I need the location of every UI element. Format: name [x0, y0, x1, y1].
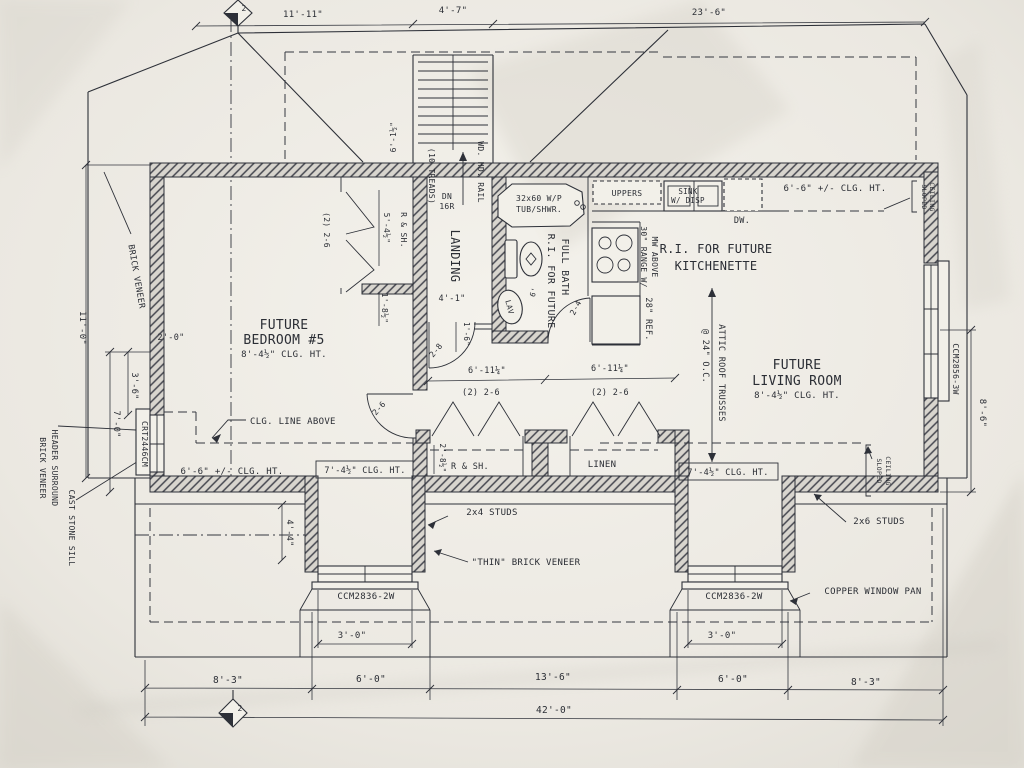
- dim-dormer-left-width: 3'-0": [338, 631, 367, 641]
- hall-dim: 1'-6": [462, 322, 471, 346]
- thin-brick-note: "THIN" BRICK VENEER: [472, 558, 581, 568]
- linen-label: LINEN: [588, 460, 617, 470]
- room-label-living-2: LIVING ROOM: [752, 374, 841, 389]
- tub-label-2: TUB/SHWR.: [516, 205, 562, 214]
- room-label-kitchenette-2: KITCHENETTE: [675, 259, 758, 273]
- dim-left-upper: 3'-6": [129, 372, 139, 399]
- tub-label-1: 32x60 W/P: [516, 194, 562, 203]
- range: [592, 228, 638, 282]
- kitchen-ceiling-note: 6'-6" +/- CLG. HT.: [784, 184, 887, 194]
- dim-left-lower: 7'-0": [111, 410, 121, 437]
- attic-truss-note-1: ATTIC ROOF TRUSSES: [716, 324, 726, 422]
- dim-bottom-2: 6'-0": [356, 674, 386, 685]
- toilet-bowl: [520, 242, 542, 276]
- sloped-ceiling-top-1: SLOPED: [920, 184, 928, 209]
- window-label-dormer-right: CCM2836-2W: [705, 592, 762, 602]
- room-label-bath-1: R.I. FOR FUTURE: [545, 234, 556, 329]
- floorplan-drawing: 11'-11" 4'-7" 23'-6" (10 TREADS) WD. HD.…: [0, 0, 1024, 768]
- bedroom-closet-door-size: (2) 2-6: [322, 212, 331, 248]
- toilet-tank: [505, 240, 517, 278]
- bedroom-closet-rod-shelf: R & SH.: [399, 212, 408, 248]
- bedroom-closet-depth-dim: 5'-4½": [382, 213, 392, 244]
- cast-stone-sill-note: CAST STONE SILL: [67, 490, 76, 567]
- ceiling-line-above-note: CLG. LINE ABOVE: [250, 417, 336, 427]
- window-label-dormer-left: CCM2836-2W: [337, 592, 394, 602]
- refrigerator: [592, 296, 640, 344]
- ceiling-note-left-low: 6'-6" +/- CLG. HT.: [181, 467, 284, 477]
- copper-pan-note: COPPER WINDOW PAN: [824, 587, 921, 597]
- room-label-bedroom-2: BEDROOM #5: [243, 333, 324, 348]
- header-surround-note-1: BRICK VENEER: [38, 437, 47, 498]
- window-label-left: CRT2446CM: [140, 421, 149, 467]
- dim-top-stair: 4'-7": [439, 6, 468, 16]
- ref-label: 28" REF.: [643, 297, 653, 340]
- room-label-kitchenette-1: R.I. FOR FUTURE: [660, 242, 773, 256]
- studs-2x4-note: 2x4 STUDS: [466, 508, 517, 518]
- bedroom-closet-offset-dim: 1'-8½": [380, 293, 390, 324]
- sloped-ceiling-bottom-2: CEILING: [884, 456, 892, 486]
- dim-right-window: 8'-6": [977, 399, 987, 428]
- hall-closet-width-dim: 6'-11¼": [468, 366, 506, 376]
- sink-label-1: SINK: [678, 187, 697, 196]
- dim-top-right: 23'-6": [692, 8, 726, 18]
- hall-closet-rod-shelf: R & SH.: [451, 462, 489, 472]
- header-surround-note-2: HEADER SURROUND: [50, 430, 59, 507]
- dim-top-left: 11'-11": [283, 10, 323, 20]
- bedroom-ceiling-note: 8'-4½" CLG. HT.: [241, 349, 327, 360]
- range-label-2: MW ABOVE: [650, 237, 659, 278]
- scanned-floor-plan-page: 11'-11" 4'-7" 23'-6" (10 TREADS) WD. HD.…: [0, 0, 1024, 768]
- room-label-landing: LANDING: [448, 230, 462, 283]
- ceiling-note-left-mid: 7'-4½" CLG. HT.: [324, 465, 405, 476]
- studs-2x6-note: 2x6 STUDS: [853, 517, 904, 527]
- landing-width-dim: 4'-1": [438, 294, 465, 304]
- range-label-1: 30" RANGE W/: [639, 226, 648, 287]
- stair-treads-note: (10 TREADS): [427, 148, 436, 204]
- wall-notch-dim: 2'-0": [157, 333, 184, 343]
- dim-bottom-4: 6'-0": [718, 674, 748, 685]
- section-marker-bottom-number: 2: [237, 704, 242, 713]
- hall-closet-depth-dim: 2'-8½": [438, 444, 447, 473]
- dishwasher: [724, 179, 762, 211]
- dim-left-total: 11'-0": [77, 311, 87, 345]
- dim-bottom-3: 13'-6": [535, 672, 571, 683]
- sloped-ceiling-bottom-1: SLOPED: [875, 458, 883, 483]
- linen-door-size: (2) 2-6: [591, 388, 629, 398]
- section-marker-top-number: 2: [241, 4, 246, 13]
- sink-label-2: W/ DISP: [671, 196, 705, 205]
- dim-dormer-right-width: 3'-0": [708, 631, 737, 641]
- ceiling-note-right-mid: 7'-4½" CLG. HT.: [687, 467, 768, 478]
- room-label-living-1: FUTURE: [773, 358, 822, 373]
- stair-down-label: DN: [442, 192, 452, 201]
- stair-rail-note: WD. HD. RAIL: [476, 141, 485, 202]
- dishwasher-label: DW.: [734, 216, 750, 226]
- stair-width-dim: 6'-1½": [388, 122, 398, 153]
- dim-bottom-total: 42'-0": [536, 705, 572, 716]
- room-label-bath-2: FULL BATH: [559, 239, 570, 296]
- dim-bottom-5: 8'-3": [851, 677, 881, 688]
- room-label-bedroom-1: FUTURE: [260, 318, 309, 333]
- living-ceiling-note: 8'-4½" CLG. HT.: [754, 390, 840, 401]
- hall-closet-door-size: (2) 2-6: [462, 388, 500, 398]
- attic-truss-note-2: @ 24" O.C.: [700, 329, 710, 383]
- sloped-ceiling-top-2: CEILING: [928, 182, 936, 212]
- dim-dormer-height: 4'-4": [284, 519, 294, 546]
- uppers-label: UPPERS: [612, 189, 643, 198]
- linen-width-dim: 6'-11¼": [591, 364, 629, 374]
- dim-bottom-1: 8'-3": [213, 675, 243, 686]
- stair-down-risers: 16R: [439, 202, 454, 211]
- window-label-right: CCM2856-3W: [951, 343, 960, 394]
